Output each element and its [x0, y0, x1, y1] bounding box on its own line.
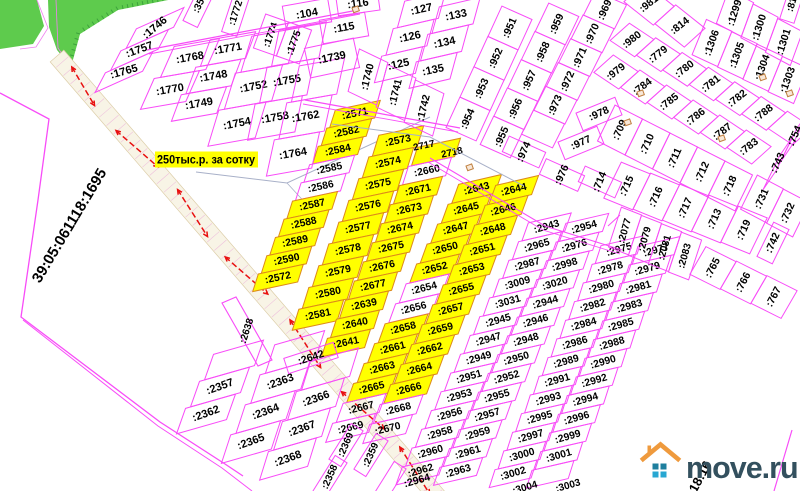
svg-text:move.ru: move.ru — [686, 451, 798, 485]
svg-text:250тыс.р. за сотку: 250тыс.р. за сотку — [157, 152, 255, 166]
